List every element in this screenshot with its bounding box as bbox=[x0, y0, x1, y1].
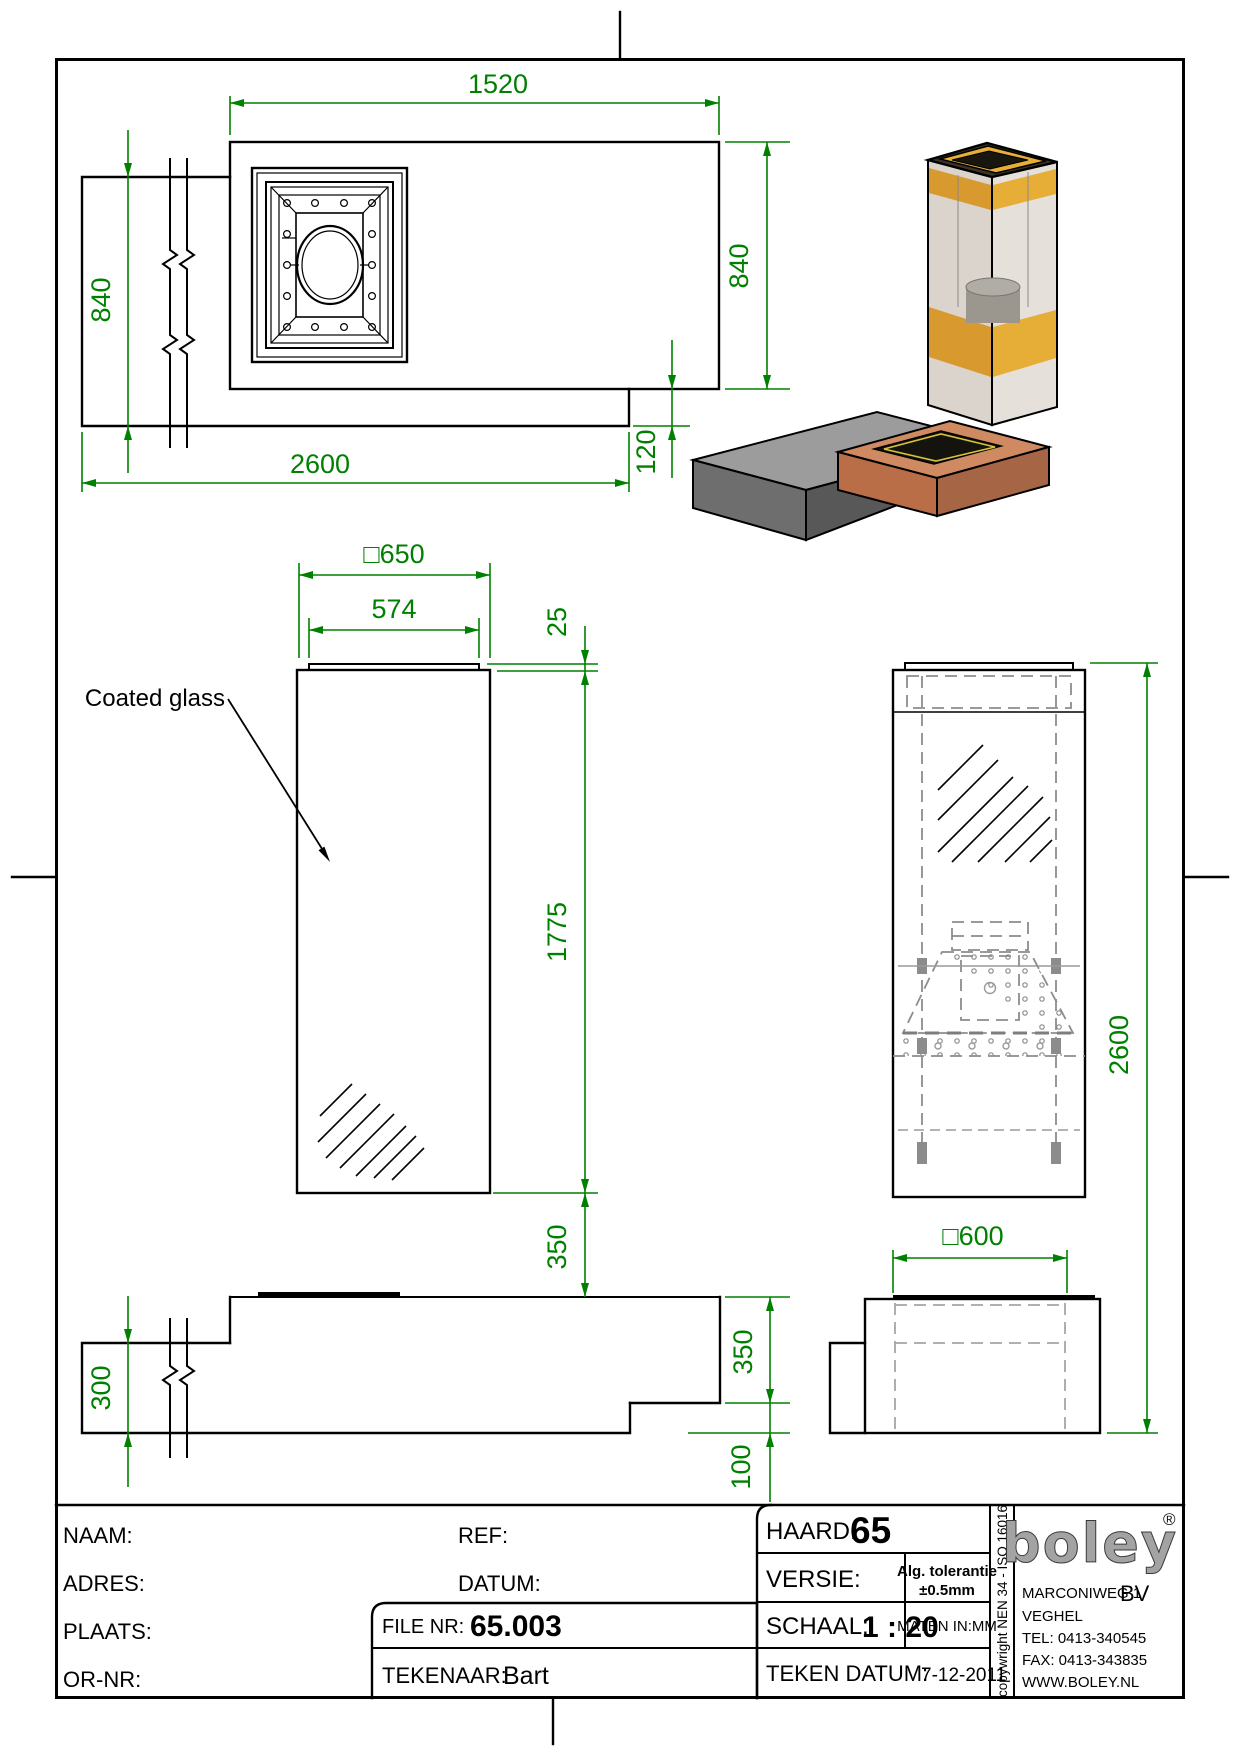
company-bv: BV bbox=[1120, 1581, 1150, 1606]
dim-gap: 350 bbox=[542, 1224, 572, 1269]
adres-label: ADRES: bbox=[63, 1571, 145, 1596]
front-view-dimensions: □650 574 25 1775 350 300 bbox=[86, 539, 790, 1502]
dim-box: □600 bbox=[942, 1221, 1003, 1251]
haard-value: 65 bbox=[850, 1510, 891, 1551]
naam-label: NAAM: bbox=[63, 1523, 133, 1548]
side-hidden-internals bbox=[893, 676, 1085, 1164]
registered-mark: ® bbox=[1163, 1510, 1176, 1529]
side-bench bbox=[830, 1297, 1100, 1433]
break-line bbox=[180, 1318, 194, 1458]
dim-glass-height: 1775 bbox=[542, 902, 572, 962]
file-value: 65.003 bbox=[470, 1610, 562, 1643]
cad-canvas: 1520 840 840 2600 120 bbox=[0, 0, 1240, 1755]
dim-bench-length: 2600 bbox=[290, 449, 350, 479]
dim-bench-depth: 840 bbox=[86, 277, 116, 322]
company-address2: VEGHEL bbox=[1022, 1608, 1083, 1625]
dim-plate-depth: 840 bbox=[724, 243, 754, 288]
ref-label: REF: bbox=[458, 1523, 508, 1548]
dim-unit-height: 350 bbox=[728, 1329, 758, 1374]
coated-glass-label: Coated glass bbox=[85, 685, 225, 712]
company-web: WWW.BOLEY.NL bbox=[1022, 1674, 1139, 1691]
front-bench bbox=[82, 1294, 720, 1458]
iso-column bbox=[928, 143, 1057, 425]
coated-glass-callout: Coated glass bbox=[85, 685, 330, 862]
tekenaar-value: Bart bbox=[503, 1662, 549, 1690]
teken-datum-label: TEKEN DATUM: bbox=[766, 1661, 928, 1686]
tolerantie-line2: ±0.5mm bbox=[919, 1582, 975, 1599]
haard-label: HAARD: bbox=[766, 1518, 857, 1545]
dim-collar-height: 25 bbox=[542, 607, 572, 637]
dim-glass-width: □650 bbox=[363, 539, 424, 569]
top-view-dimensions: 1520 840 840 2600 120 bbox=[82, 69, 790, 492]
drawing-sheet: 1520 840 840 2600 120 bbox=[0, 0, 1240, 1755]
company-fax: FAX: 0413-343835 bbox=[1022, 1652, 1147, 1669]
dim-collar-width: 574 bbox=[371, 594, 416, 624]
front-view: Coated glass □650 574 bbox=[82, 539, 790, 1502]
iso-bench bbox=[693, 412, 1049, 540]
side-glass-hatch bbox=[938, 745, 1052, 862]
maten-label: MATEN IN:MM bbox=[897, 1618, 997, 1635]
tekenaar-label: TEKENAAR: bbox=[382, 1663, 507, 1688]
break-line bbox=[163, 158, 177, 448]
tolerantie-line1: Alg. tolerantie bbox=[897, 1563, 997, 1580]
dim-plate-width: 1520 bbox=[468, 69, 528, 99]
teken-datum-value: 7-12-2011 bbox=[921, 1665, 1006, 1686]
title-block: NAAM: ADRES: PLAATS: OR-NR: REF: DATUM: … bbox=[56, 1505, 1184, 1698]
schaal-label: SCHAAL: bbox=[766, 1613, 869, 1640]
company-block: boley ® MARCONIWEG 1 BV VEGHEL TEL: 0413… bbox=[1002, 1510, 1178, 1691]
break-line bbox=[163, 1318, 177, 1458]
file-label: FILE NR: bbox=[382, 1616, 464, 1638]
perforated-plate bbox=[903, 952, 1073, 1056]
plaats-label: PLAATS: bbox=[63, 1619, 152, 1644]
versie-label: VERSIE: bbox=[766, 1566, 861, 1593]
dim-overhang: 120 bbox=[631, 429, 661, 474]
dim-bench-height: 300 bbox=[86, 1365, 116, 1410]
dim-lip: 100 bbox=[726, 1444, 756, 1489]
dim-total-height: 2600 bbox=[1104, 1015, 1134, 1075]
burner-flange-plan bbox=[252, 168, 407, 362]
datum-label: DATUM: bbox=[458, 1571, 541, 1596]
break-line bbox=[180, 158, 194, 448]
iso-flue-cylinder bbox=[966, 278, 1020, 323]
ornr-label: OR-NR: bbox=[63, 1667, 141, 1692]
boley-logo: boley bbox=[1002, 1512, 1178, 1575]
glass-hatch bbox=[318, 1084, 424, 1180]
side-view: □600 2600 bbox=[830, 663, 1158, 1433]
top-view: 1520 840 840 2600 120 bbox=[82, 69, 790, 492]
company-tel: TEL: 0413-340545 bbox=[1022, 1630, 1146, 1647]
iso-3d-view bbox=[693, 143, 1057, 540]
